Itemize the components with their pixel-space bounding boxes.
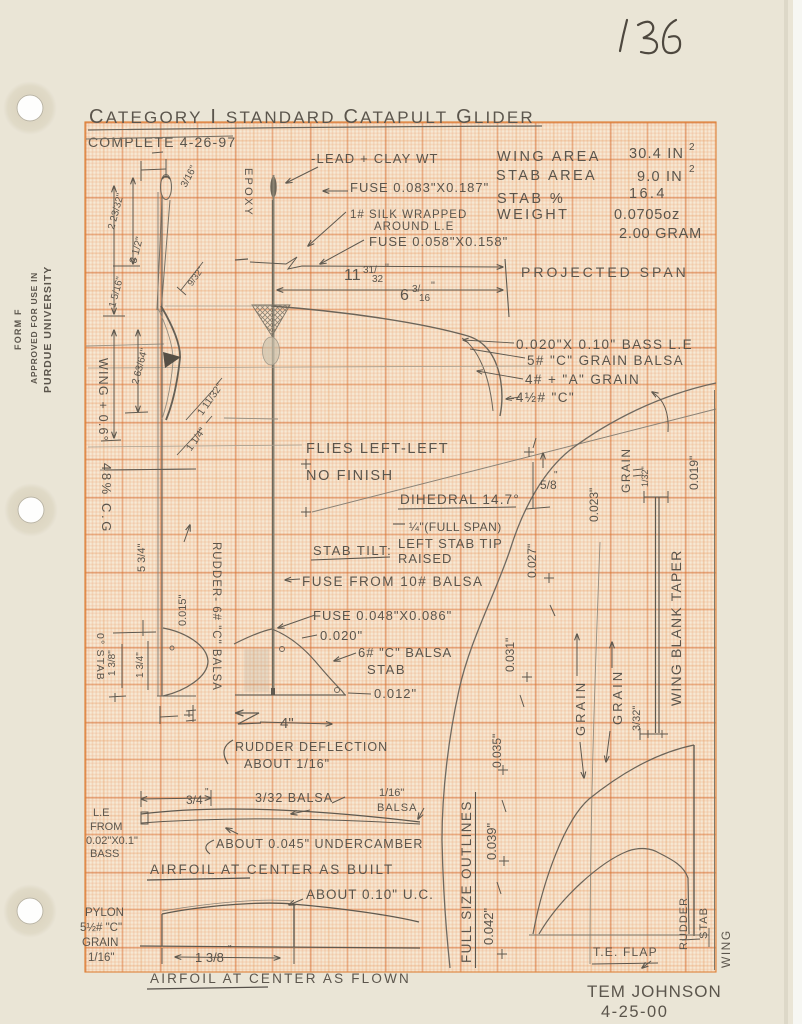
svg-text:0° STAB: 0° STAB: [94, 633, 106, 681]
svg-text:RUDDER- 6# "C" BALSA: RUDDER- 6# "C" BALSA: [210, 542, 222, 691]
svg-text:RAISED: RAISED: [398, 551, 452, 566]
svg-text:1 3/8: 1 3/8: [195, 950, 224, 965]
svg-text:0.015": 0.015": [177, 594, 189, 626]
svg-text:DIHEDRAL 14.7°: DIHEDRAL 14.7°: [400, 492, 520, 507]
svg-text:3/32": 3/32": [631, 706, 643, 731]
svg-text:1 3/4": 1 3/4": [135, 652, 146, 678]
svg-text:2: 2: [689, 164, 697, 175]
svg-text:9.0 IN: 9.0 IN: [637, 169, 683, 185]
svg-text:FUSE FROM 10# BALSA: FUSE FROM 10# BALSA: [302, 574, 484, 589]
svg-text:AIRFOIL AT CENTER AS FLOWN: AIRFOIL AT CENTER AS FLOWN: [150, 971, 411, 986]
svg-text:FUSE 0.058"X0.158": FUSE 0.058"X0.158": [369, 234, 508, 249]
svg-text:1/16": 1/16": [88, 952, 114, 964]
svg-text:2: 2: [689, 142, 697, 153]
svg-text:GRAIN: GRAIN: [573, 680, 588, 736]
svg-text:FUSE 0.083"X0.187": FUSE 0.083"X0.187": [350, 180, 489, 195]
svg-text:30.4 IN: 30.4 IN: [629, 146, 684, 162]
svg-text:6# "C" BALSA: 6# "C" BALSA: [358, 645, 452, 660]
svg-text:BASS: BASS: [90, 848, 119, 860]
svg-text:1/16": 1/16": [379, 787, 404, 799]
svg-text:WING: WING: [719, 929, 733, 968]
svg-text:": ": [205, 787, 209, 798]
svg-text:0.042": 0.042": [481, 907, 496, 945]
svg-text:GRAIN: GRAIN: [610, 669, 625, 725]
svg-text:6: 6: [400, 287, 409, 304]
svg-text:TEM JOHNSON: TEM JOHNSON: [587, 982, 722, 1001]
svg-text:BALSA: BALSA: [377, 802, 417, 814]
svg-text:0.031": 0.031": [503, 638, 517, 672]
svg-text:5½# "C": 5½# "C": [80, 922, 122, 934]
svg-text:": ": [431, 280, 435, 292]
svg-text:STAB %: STAB %: [497, 191, 565, 207]
svg-text:-4½# "C": -4½# "C": [510, 390, 575, 405]
svg-text:3/4: 3/4: [186, 793, 203, 807]
svg-text:PYLON: PYLON: [85, 907, 124, 919]
svg-text:LEFT STAB TIP: LEFT STAB TIP: [398, 536, 503, 551]
svg-text:T.E. FLAP: T.E. FLAP: [593, 945, 658, 959]
svg-text:STAB: STAB: [367, 662, 406, 677]
svg-text:EPOXY: EPOXY: [242, 168, 254, 217]
svg-text:STAB: STAB: [698, 907, 710, 939]
svg-text:": ": [385, 262, 389, 274]
svg-text:FUSE 0.048"X0.086": FUSE 0.048"X0.086": [313, 608, 452, 623]
svg-text:GRAIN: GRAIN: [619, 447, 633, 493]
svg-text:¼"(FULL SPAN): ¼"(FULL SPAN): [409, 520, 502, 534]
svg-text:": ": [228, 944, 232, 955]
svg-text:FROM: FROM: [90, 821, 122, 833]
svg-text:0.0705oz: 0.0705oz: [614, 207, 680, 223]
svg-text:RUDDER: RUDDER: [678, 897, 690, 950]
svg-text:5# "C" GRAIN BALSA: 5# "C" GRAIN BALSA: [527, 353, 684, 368]
svg-text:0.012": 0.012": [374, 686, 417, 701]
svg-text:5 3/4": 5 3/4": [136, 544, 148, 572]
svg-text:0.039": 0.039": [484, 822, 499, 860]
svg-text:0.019": 0.019": [687, 456, 701, 490]
svg-text:3/32 BALSA: 3/32 BALSA: [255, 791, 333, 805]
svg-text:PROJECTED SPAN: PROJECTED SPAN: [521, 264, 689, 280]
svg-text:0.035": 0.035": [490, 734, 504, 768]
svg-text:1 3/8": 1 3/8": [107, 650, 118, 676]
svg-text:0.027": 0.027": [525, 544, 539, 578]
svg-text:": ": [554, 470, 558, 481]
svg-text:WING BLANK TAPER: WING BLANK TAPER: [668, 550, 684, 706]
svg-text:WING + 0.6°: WING + 0.6°: [96, 358, 110, 442]
svg-text:FLIES LEFT-LEFT: FLIES LEFT-LEFT: [306, 441, 449, 457]
svg-text:NO FINISH: NO FINISH: [306, 468, 394, 484]
svg-text:ABOUT 0.045" UNDERCAMBER: ABOUT 0.045" UNDERCAMBER: [216, 837, 423, 851]
svg-text:11: 11: [344, 267, 361, 284]
svg-text:STAB AREA: STAB AREA: [496, 168, 597, 184]
svg-text:CATEGORY I STANDARD CATAPULT G: CATEGORY I STANDARD CATAPULT GLIDER: [89, 106, 535, 128]
svg-text:ABOUT 1/16": ABOUT 1/16": [244, 757, 330, 771]
svg-text:WEIGHT: WEIGHT: [497, 207, 569, 223]
svg-text:0.020": 0.020": [320, 628, 363, 643]
svg-text:32: 32: [372, 274, 384, 285]
svg-text:FORM F: FORM F: [13, 308, 23, 350]
svg-text:16: 16: [419, 293, 431, 304]
svg-text:-LEAD + CLAY WT: -LEAD + CLAY WT: [311, 151, 439, 166]
svg-text:GRAIN: GRAIN: [82, 937, 118, 949]
svg-text:2.00 GRAM: 2.00 GRAM: [619, 226, 702, 242]
svg-text:FULL SIZE OUTLINES: FULL SIZE OUTLINES: [459, 800, 474, 963]
svg-text:4-25-00: 4-25-00: [601, 1003, 668, 1021]
svg-text:16.4: 16.4: [629, 186, 667, 202]
svg-text:0.023": 0.023": [587, 488, 601, 522]
svg-text:PURDUE UNIVERSITY: PURDUE UNIVERSITY: [42, 266, 54, 393]
svg-text:0.02"X0.1": 0.02"X0.1": [86, 835, 138, 847]
svg-text:4": 4": [280, 715, 294, 732]
svg-text:APPROVED FOR USE IN: APPROVED FOR USE IN: [29, 272, 39, 384]
svg-text:STAB TILT:: STAB TILT:: [313, 543, 392, 558]
svg-text:AROUND L.E: AROUND L.E: [374, 221, 454, 233]
svg-text:1# SILK WRAPPED: 1# SILK WRAPPED: [350, 209, 467, 221]
svg-text:0.020"X 0.10" BASS L.E: 0.020"X 0.10" BASS L.E: [516, 337, 693, 352]
svg-text:WING AREA: WING AREA: [497, 149, 601, 165]
svg-text:48% C.G: 48% C.G: [99, 463, 114, 534]
svg-text:RUDDER DEFLECTION: RUDDER DEFLECTION: [235, 740, 388, 754]
svg-text:AIRFOIL AT CENTER AS BUILT: AIRFOIL AT CENTER AS BUILT: [150, 862, 394, 877]
svg-text:1/32": 1/32": [640, 466, 650, 487]
svg-text:ABOUT 0.10" U.C.: ABOUT 0.10" U.C.: [306, 887, 434, 902]
svg-text:L.E: L.E: [93, 807, 110, 819]
svg-text:4# + "A" GRAIN: 4# + "A" GRAIN: [525, 372, 640, 387]
